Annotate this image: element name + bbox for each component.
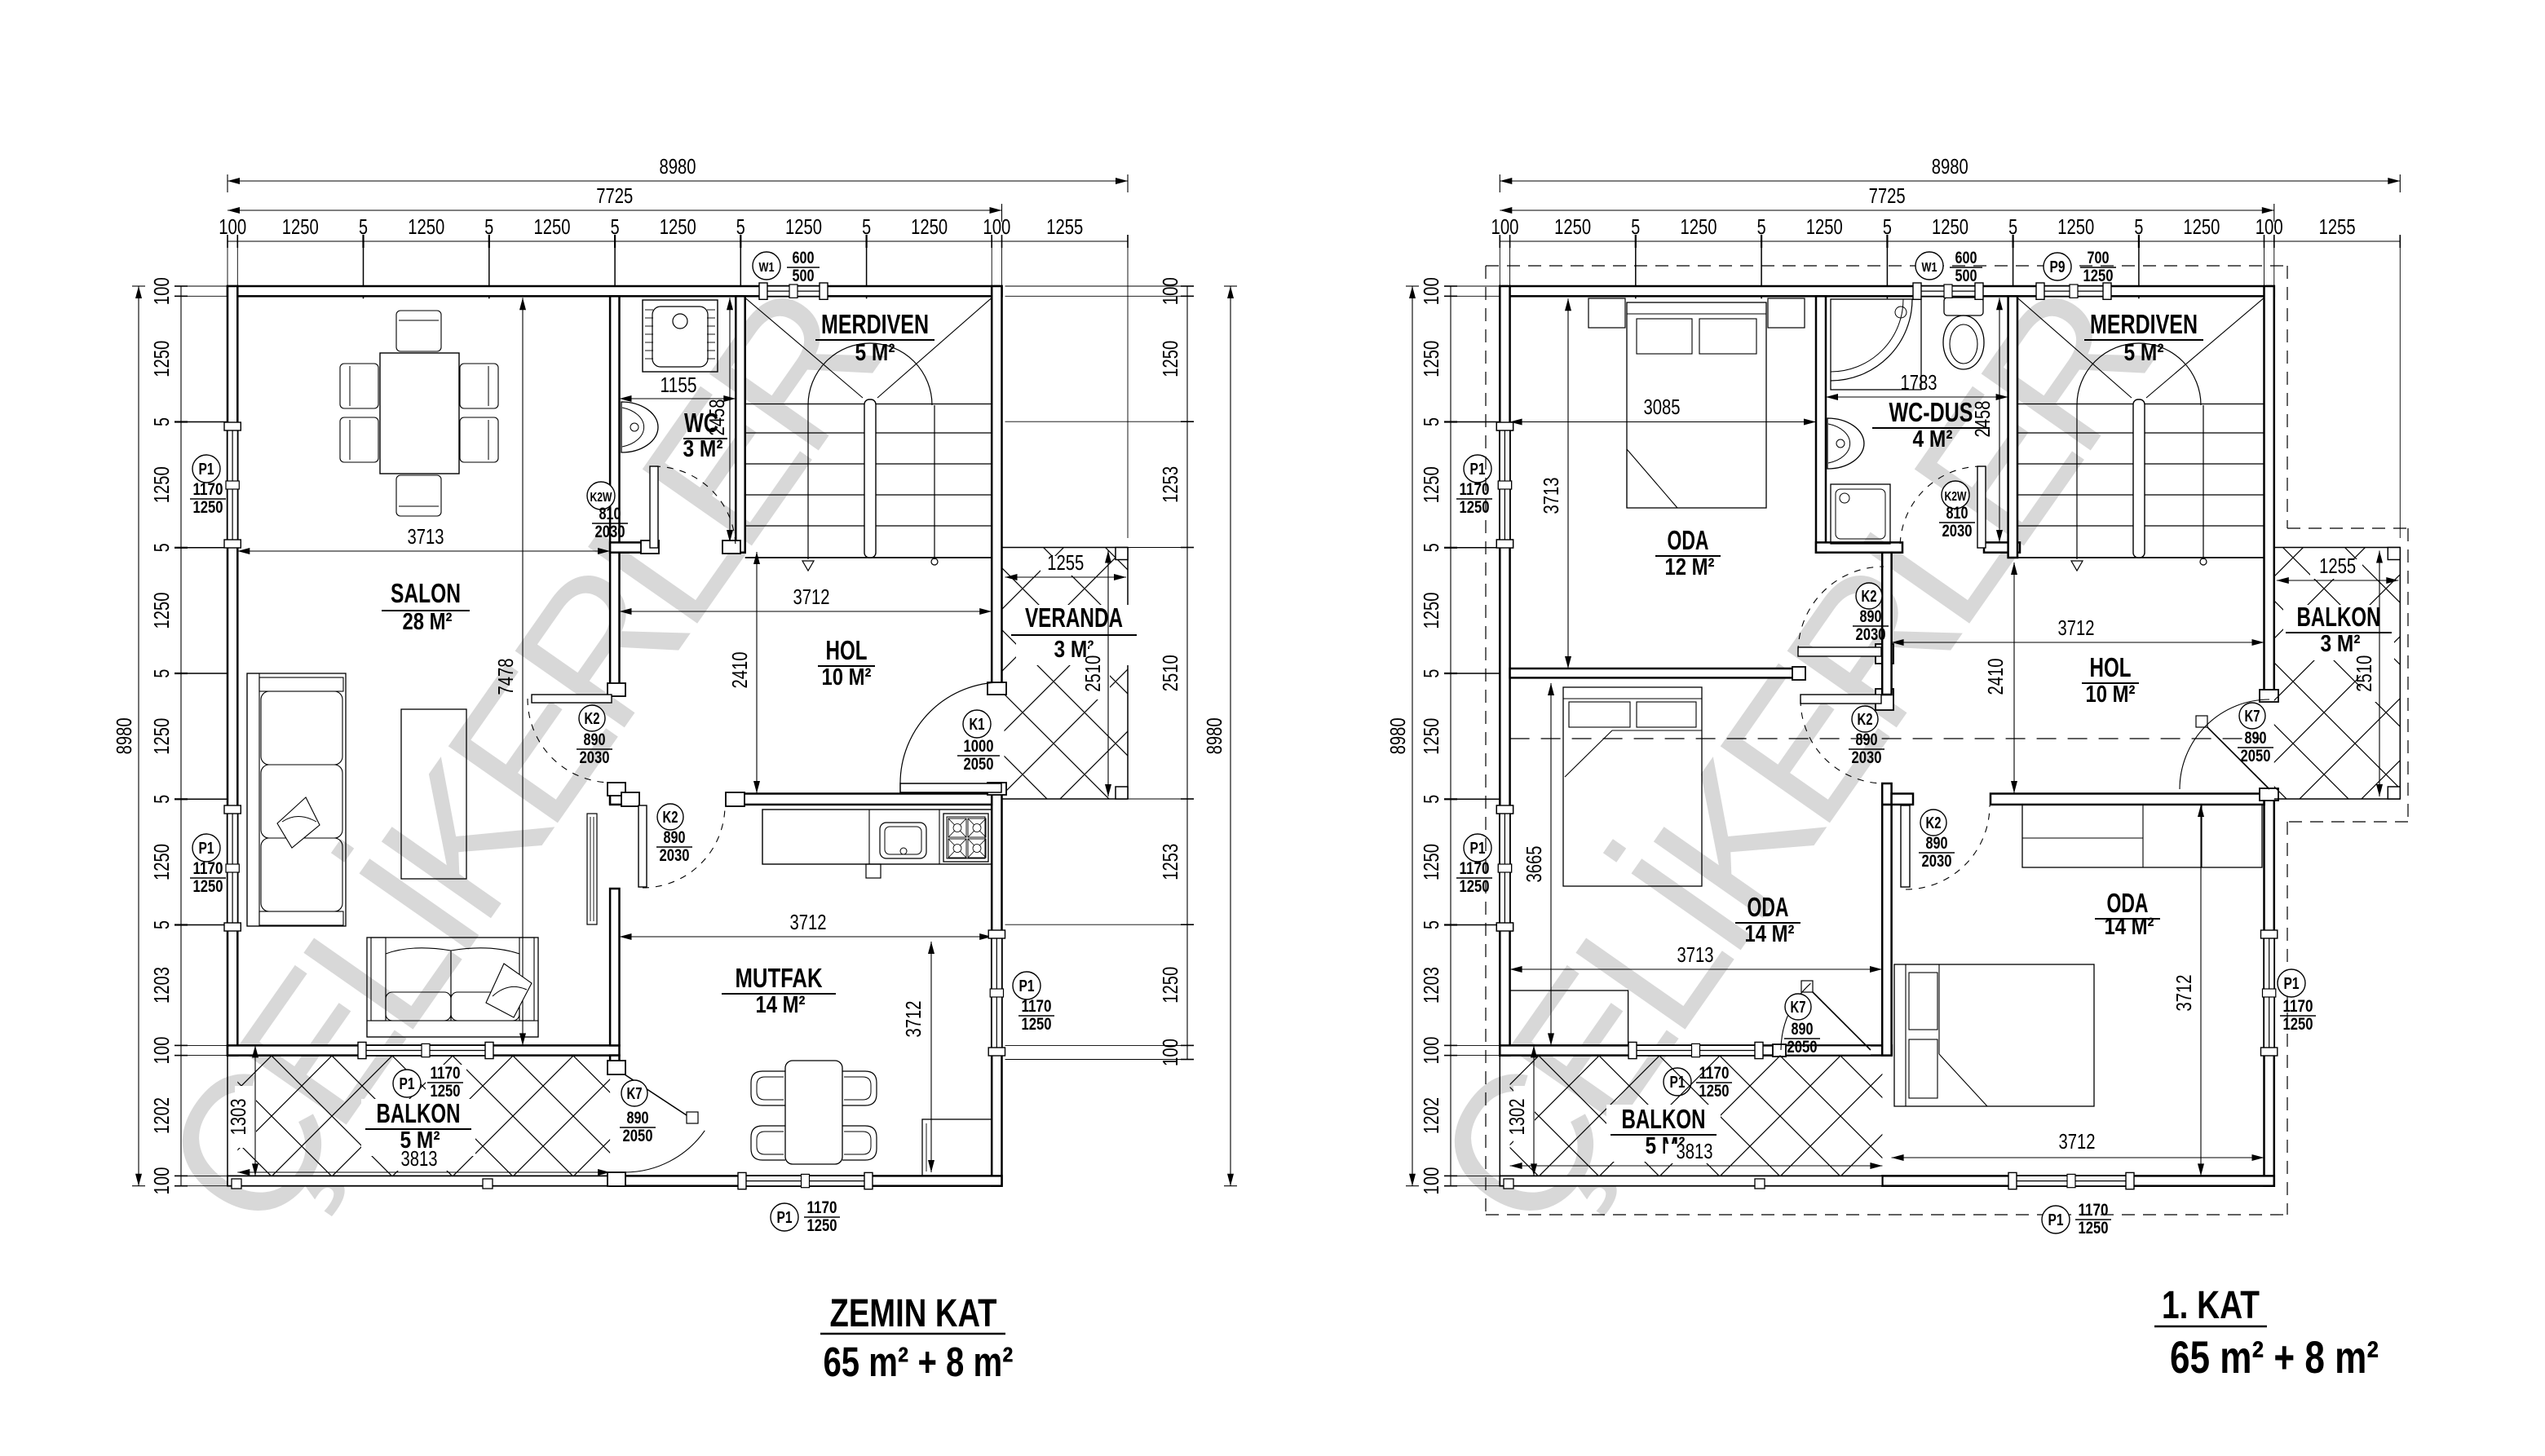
svg-text:K2: K2 xyxy=(585,710,600,728)
svg-text:K2: K2 xyxy=(1862,588,1877,606)
svg-text:7725: 7725 xyxy=(596,183,633,208)
svg-text:890: 890 xyxy=(1792,1020,1814,1039)
svg-text:28 M²: 28 M² xyxy=(403,609,453,635)
svg-text:500: 500 xyxy=(793,267,815,285)
svg-text:K2: K2 xyxy=(663,809,678,827)
svg-text:7725: 7725 xyxy=(1869,183,1906,208)
svg-text:1170: 1170 xyxy=(2283,997,2313,1016)
svg-text:100: 100 xyxy=(219,214,246,239)
svg-text:3 M²: 3 M² xyxy=(2321,631,2361,657)
svg-text:K2: K2 xyxy=(1926,814,1942,832)
svg-text:1783: 1783 xyxy=(1901,370,1937,395)
svg-text:5: 5 xyxy=(149,543,174,552)
svg-text:1250: 1250 xyxy=(1419,341,1443,377)
svg-text:P1: P1 xyxy=(199,461,214,479)
svg-text:5: 5 xyxy=(359,214,368,239)
svg-text:5: 5 xyxy=(1757,214,1766,239)
svg-text:P1: P1 xyxy=(1470,840,1486,858)
svg-text:1250: 1250 xyxy=(1158,967,1182,1004)
svg-text:1250: 1250 xyxy=(149,593,174,629)
svg-text:1. KAT: 1. KAT xyxy=(2162,1284,2260,1327)
svg-text:1250: 1250 xyxy=(282,214,319,239)
svg-text:2030: 2030 xyxy=(660,846,690,865)
svg-text:5: 5 xyxy=(1419,920,1443,929)
svg-text:1250: 1250 xyxy=(785,214,822,239)
svg-text:BALKON: BALKON xyxy=(1622,1104,1706,1134)
svg-text:2030: 2030 xyxy=(1856,625,1886,644)
svg-text:HOL: HOL xyxy=(826,635,868,665)
svg-text:2030: 2030 xyxy=(1942,522,1973,540)
svg-text:W1: W1 xyxy=(1922,261,1937,275)
svg-text:5: 5 xyxy=(611,214,620,239)
svg-text:8980: 8980 xyxy=(112,717,136,754)
svg-text:3665: 3665 xyxy=(1522,846,1546,883)
svg-text:100: 100 xyxy=(983,214,1010,239)
svg-text:5: 5 xyxy=(149,795,174,804)
svg-text:1250: 1250 xyxy=(149,844,174,880)
svg-text:5: 5 xyxy=(149,669,174,678)
svg-text:SALON: SALON xyxy=(391,578,461,608)
svg-text:P1: P1 xyxy=(199,840,214,858)
svg-text:2410: 2410 xyxy=(1983,659,2008,695)
svg-text:890: 890 xyxy=(1856,730,1878,749)
svg-text:14 M²: 14 M² xyxy=(2105,914,2154,940)
svg-text:10 M²: 10 M² xyxy=(822,664,872,690)
svg-text:1255: 1255 xyxy=(2319,214,2356,239)
svg-text:1000: 1000 xyxy=(964,737,994,756)
svg-text:2050: 2050 xyxy=(623,1127,653,1145)
svg-text:2510: 2510 xyxy=(2352,655,2376,692)
svg-text:1250: 1250 xyxy=(1419,593,1443,629)
svg-text:P1: P1 xyxy=(400,1075,415,1093)
svg-text:1202: 1202 xyxy=(149,1097,174,1134)
svg-text:1250: 1250 xyxy=(534,214,571,239)
svg-text:1250: 1250 xyxy=(1460,877,1490,896)
svg-text:5: 5 xyxy=(862,214,871,239)
svg-text:1250: 1250 xyxy=(2283,1015,2313,1034)
svg-text:3 M²: 3 M² xyxy=(683,436,723,462)
svg-text:5: 5 xyxy=(1883,214,1892,239)
svg-text:3712: 3712 xyxy=(790,910,827,934)
svg-text:1303: 1303 xyxy=(226,1099,250,1136)
svg-text:ODA: ODA xyxy=(1747,892,1789,922)
svg-text:1203: 1203 xyxy=(1419,967,1443,1004)
svg-text:3085: 3085 xyxy=(1644,395,1681,419)
svg-text:K2: K2 xyxy=(1858,711,1873,729)
svg-text:1250: 1250 xyxy=(2083,267,2114,285)
svg-text:890: 890 xyxy=(1860,607,1882,626)
svg-text:1170: 1170 xyxy=(2079,1201,2109,1220)
svg-text:10 M²: 10 M² xyxy=(2086,682,2136,708)
svg-text:HOL: HOL xyxy=(2090,652,2132,682)
svg-text:1170: 1170 xyxy=(193,859,223,878)
svg-text:7478: 7478 xyxy=(493,659,518,695)
svg-text:1250: 1250 xyxy=(1460,498,1490,517)
svg-text:K2W: K2W xyxy=(1945,490,1968,504)
svg-text:2030: 2030 xyxy=(595,523,625,541)
svg-text:600: 600 xyxy=(793,249,815,267)
svg-text:P1: P1 xyxy=(2284,975,2300,993)
svg-text:2030: 2030 xyxy=(1922,852,1952,871)
svg-text:3712: 3712 xyxy=(793,585,830,609)
svg-text:5: 5 xyxy=(1419,795,1443,804)
svg-text:5 M²: 5 M² xyxy=(855,340,895,366)
svg-text:1250: 1250 xyxy=(2183,214,2220,239)
svg-text:5 M²: 5 M² xyxy=(2124,340,2164,366)
svg-text:1250: 1250 xyxy=(2057,214,2094,239)
svg-text:890: 890 xyxy=(1926,834,1948,853)
svg-text:2410: 2410 xyxy=(727,652,752,689)
svg-text:5: 5 xyxy=(484,214,493,239)
svg-text:4 M²: 4 M² xyxy=(1913,426,1953,452)
svg-text:1250: 1250 xyxy=(193,498,223,517)
svg-text:2030: 2030 xyxy=(580,748,610,767)
svg-text:5: 5 xyxy=(1419,543,1443,552)
svg-text:100: 100 xyxy=(2256,214,2283,239)
svg-text:1250: 1250 xyxy=(2079,1219,2109,1238)
svg-text:3712: 3712 xyxy=(901,1001,926,1038)
svg-text:1170: 1170 xyxy=(431,1064,461,1083)
svg-text:1250: 1250 xyxy=(149,341,174,377)
svg-text:1250: 1250 xyxy=(431,1082,461,1101)
svg-text:100: 100 xyxy=(1158,1039,1182,1066)
svg-text:5: 5 xyxy=(2134,214,2143,239)
svg-text:2510: 2510 xyxy=(1158,655,1182,691)
svg-text:3813: 3813 xyxy=(401,1146,438,1171)
svg-text:100: 100 xyxy=(149,1167,174,1195)
svg-text:1170: 1170 xyxy=(1460,480,1490,499)
svg-text:1250: 1250 xyxy=(1158,341,1182,377)
svg-text:1255: 1255 xyxy=(2319,554,2356,578)
svg-text:BALKON: BALKON xyxy=(2297,602,2381,632)
svg-text:3713: 3713 xyxy=(408,524,444,549)
svg-text:5: 5 xyxy=(1419,417,1443,426)
svg-text:100: 100 xyxy=(149,1037,174,1065)
svg-text:1250: 1250 xyxy=(1022,1015,1052,1034)
svg-text:14 M²: 14 M² xyxy=(1745,921,1795,947)
svg-text:3712: 3712 xyxy=(2058,615,2095,640)
svg-text:5: 5 xyxy=(1631,214,1640,239)
svg-text:2030: 2030 xyxy=(1852,748,1882,767)
svg-text:1250: 1250 xyxy=(193,877,223,896)
svg-text:5: 5 xyxy=(1419,669,1443,678)
svg-text:P1: P1 xyxy=(1470,461,1486,479)
svg-text:500: 500 xyxy=(1955,267,1977,285)
svg-text:890: 890 xyxy=(584,730,606,749)
svg-text:100: 100 xyxy=(1419,1037,1443,1065)
svg-text:2510: 2510 xyxy=(1080,655,1105,692)
svg-text:890: 890 xyxy=(664,828,686,847)
svg-text:K2W: K2W xyxy=(590,491,613,505)
svg-text:5: 5 xyxy=(2008,214,2017,239)
svg-text:BALKON: BALKON xyxy=(377,1098,461,1128)
svg-text:3712: 3712 xyxy=(2059,1129,2096,1154)
svg-text:K7: K7 xyxy=(2245,708,2260,726)
svg-text:1250: 1250 xyxy=(1806,214,1843,239)
svg-text:1170: 1170 xyxy=(1022,997,1052,1016)
svg-text:3712: 3712 xyxy=(2172,975,2196,1012)
svg-text:100: 100 xyxy=(1158,277,1182,305)
svg-text:P1: P1 xyxy=(777,1209,793,1227)
svg-text:1170: 1170 xyxy=(807,1198,837,1217)
svg-text:600: 600 xyxy=(1955,249,1977,267)
svg-text:1170: 1170 xyxy=(193,480,223,499)
svg-text:K7: K7 xyxy=(627,1085,643,1103)
svg-text:1250: 1250 xyxy=(1419,466,1443,503)
svg-text:12 M²: 12 M² xyxy=(1665,554,1715,580)
svg-text:2458: 2458 xyxy=(1970,401,1995,438)
svg-text:MUTFAK: MUTFAK xyxy=(736,963,823,993)
svg-text:K7: K7 xyxy=(1791,999,1806,1017)
svg-text:P1: P1 xyxy=(2048,1211,2064,1229)
svg-text:WC-DUS: WC-DUS xyxy=(1889,397,1973,427)
svg-text:1250: 1250 xyxy=(1419,718,1443,755)
svg-text:1203: 1203 xyxy=(149,967,174,1004)
svg-text:W1: W1 xyxy=(759,261,775,275)
svg-text:65 m² + 8 m²: 65 m² + 8 m² xyxy=(2170,1331,2379,1383)
svg-text:P9: P9 xyxy=(2050,258,2066,276)
svg-text:8980: 8980 xyxy=(1932,154,1968,179)
svg-text:3813: 3813 xyxy=(1677,1139,1713,1163)
svg-text:1250: 1250 xyxy=(807,1216,837,1235)
svg-text:2050: 2050 xyxy=(1787,1038,1818,1057)
svg-text:1250: 1250 xyxy=(1554,214,1591,239)
svg-text:WC: WC xyxy=(684,408,718,438)
svg-text:2050: 2050 xyxy=(2241,747,2271,766)
svg-text:8980: 8980 xyxy=(660,154,696,179)
svg-text:P1: P1 xyxy=(1019,977,1035,995)
svg-text:1250: 1250 xyxy=(408,214,444,239)
svg-text:890: 890 xyxy=(627,1109,649,1127)
svg-text:3713: 3713 xyxy=(1677,942,1714,967)
svg-text:1250: 1250 xyxy=(1681,214,1717,239)
svg-text:700: 700 xyxy=(2088,249,2110,267)
svg-text:1250: 1250 xyxy=(1419,844,1443,880)
svg-text:1255: 1255 xyxy=(1047,550,1084,575)
svg-text:100: 100 xyxy=(1419,1167,1443,1195)
svg-text:5: 5 xyxy=(149,417,174,426)
svg-text:1250: 1250 xyxy=(149,718,174,755)
svg-text:100: 100 xyxy=(1419,277,1443,305)
svg-text:1253: 1253 xyxy=(1158,844,1182,880)
svg-text:14 M²: 14 M² xyxy=(756,992,806,1018)
svg-text:100: 100 xyxy=(149,277,174,305)
svg-text:1250: 1250 xyxy=(149,466,174,503)
svg-text:MERDIVEN: MERDIVEN xyxy=(821,309,929,339)
svg-text:1250: 1250 xyxy=(1932,214,1968,239)
svg-text:1255: 1255 xyxy=(1046,214,1083,239)
svg-text:1202: 1202 xyxy=(1419,1097,1443,1134)
svg-text:ODA: ODA xyxy=(1668,525,1709,555)
svg-text:1170: 1170 xyxy=(1460,859,1490,878)
svg-text:890: 890 xyxy=(2245,729,2267,748)
svg-text:1253: 1253 xyxy=(1158,466,1182,503)
svg-text:1250: 1250 xyxy=(911,214,948,239)
svg-text:65 m² + 8 m²: 65 m² + 8 m² xyxy=(824,1339,1014,1385)
svg-text:5: 5 xyxy=(149,920,174,929)
svg-text:810: 810 xyxy=(599,505,621,523)
svg-text:100: 100 xyxy=(1491,214,1519,239)
svg-text:8980: 8980 xyxy=(1385,717,1410,754)
svg-text:K1: K1 xyxy=(970,716,985,734)
svg-text:ZEMIN KAT: ZEMIN KAT xyxy=(830,1292,997,1335)
svg-text:1302: 1302 xyxy=(1504,1099,1529,1136)
svg-text:1250: 1250 xyxy=(660,214,696,239)
svg-text:8980: 8980 xyxy=(1202,717,1226,754)
svg-text:1155: 1155 xyxy=(661,373,697,397)
svg-text:810: 810 xyxy=(1946,504,1968,523)
svg-text:2050: 2050 xyxy=(964,755,994,774)
svg-text:5: 5 xyxy=(736,214,745,239)
svg-text:MERDIVEN: MERDIVEN xyxy=(2090,309,2198,339)
svg-text:3713: 3713 xyxy=(1539,478,1563,514)
